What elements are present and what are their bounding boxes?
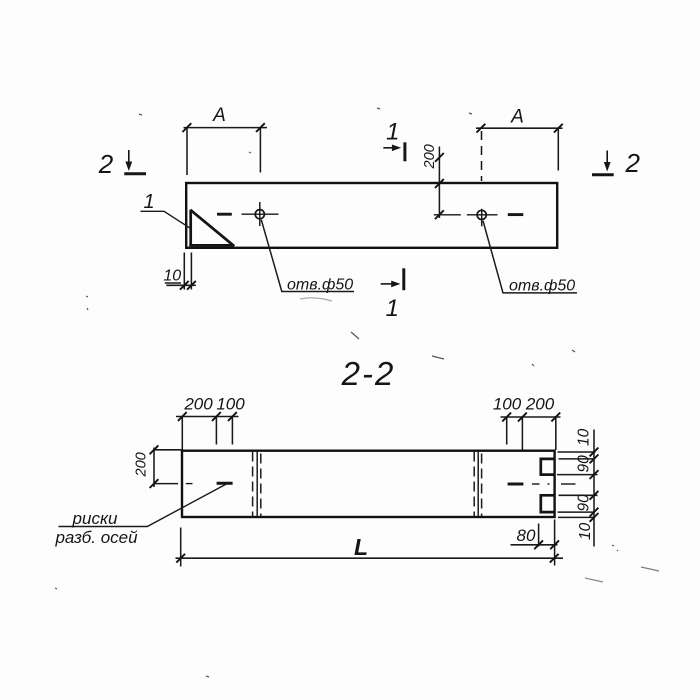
svg-text:отв.ф50: отв.ф50 (287, 276, 353, 293)
svg-text:отв.ф50: отв.ф50 (509, 278, 575, 295)
svg-text:200: 200 (183, 395, 213, 414)
svg-text:риски: риски (72, 509, 118, 528)
svg-text:1: 1 (143, 191, 154, 213)
svg-text:разб. осей: разб. осей (54, 528, 138, 547)
svg-text:100: 100 (216, 395, 245, 414)
svg-text:10: 10 (163, 267, 181, 284)
svg-text:10: 10 (577, 522, 594, 540)
svg-text:A: A (212, 105, 226, 126)
svg-text:10: 10 (576, 428, 593, 446)
svg-text:2: 2 (624, 148, 640, 178)
svg-text:A: A (510, 107, 524, 128)
svg-text:80: 80 (517, 526, 536, 545)
svg-text:90: 90 (576, 494, 593, 512)
svg-text:90: 90 (576, 455, 593, 473)
svg-text:200: 200 (422, 144, 438, 169)
svg-text:2-2: 2-2 (341, 355, 396, 392)
svg-text:200: 200 (525, 395, 555, 414)
svg-text:1: 1 (386, 295, 399, 322)
svg-text:100: 100 (493, 395, 522, 414)
svg-text:2: 2 (98, 149, 114, 179)
svg-text:L: L (354, 534, 368, 560)
svg-text:1: 1 (386, 118, 399, 145)
svg-text:200: 200 (134, 452, 150, 477)
